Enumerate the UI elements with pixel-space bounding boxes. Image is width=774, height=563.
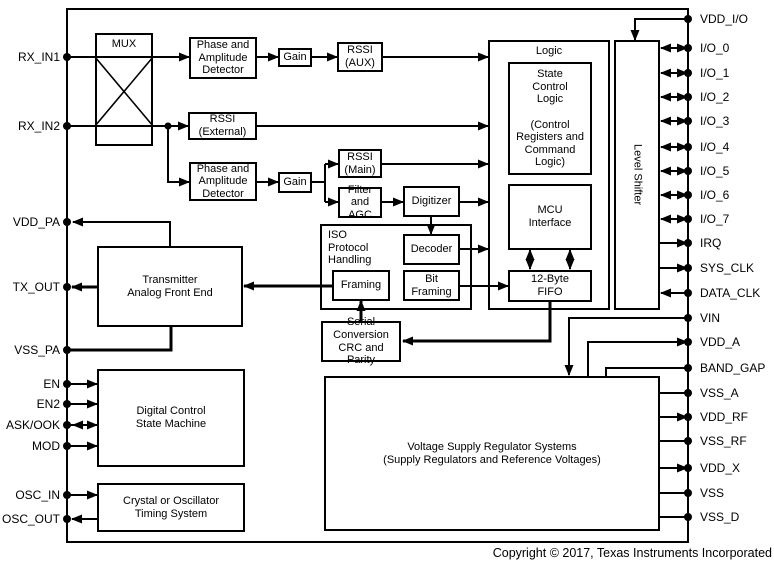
pin-label-osc-in: OSC_IN bbox=[0, 487, 60, 503]
pin-label-band-gap: BAND_GAP bbox=[700, 360, 774, 376]
pin-label-io-5: I/O_5 bbox=[700, 163, 774, 179]
pin-label-vdd-io: VDD_I/O bbox=[700, 11, 774, 27]
mux-cross bbox=[95, 57, 153, 126]
block-diagram: ISO Protocol Handling Logic MUX Phase an… bbox=[0, 0, 774, 563]
pin-label-mod: MOD bbox=[0, 438, 60, 454]
pin-label-io-2: I/O_2 bbox=[700, 89, 774, 105]
pin-label-osc-out: OSC_OUT bbox=[0, 511, 60, 527]
pin-label-io-3: I/O_3 bbox=[700, 113, 774, 129]
pin-label-io-1: I/O_1 bbox=[700, 65, 774, 81]
signal-wires bbox=[67, 19, 688, 519]
pin-label-irq: IRQ bbox=[700, 235, 774, 251]
pin-label-vss-a: VSS_A bbox=[700, 385, 774, 401]
pin-label-rx-in1: RX_IN1 bbox=[0, 49, 60, 65]
pin-label-vdd-a: VDD_A bbox=[700, 334, 774, 350]
wiring-layer bbox=[0, 0, 774, 563]
pin-label-rx-in2: RX_IN2 bbox=[0, 118, 60, 134]
pin-label-tx-out: TX_OUT bbox=[0, 279, 60, 295]
pin-label-vin: VIN bbox=[700, 310, 774, 326]
pin-label-io-7: I/O_7 bbox=[700, 211, 774, 227]
pin-label-vdd-rf: VDD_RF bbox=[700, 409, 774, 425]
pin-label-vss-pa: VSS_PA bbox=[0, 342, 60, 358]
pin-label-vss: VSS bbox=[700, 485, 774, 501]
pin-label-sys-clk: SYS_CLK bbox=[700, 260, 774, 276]
pin-label-en: EN bbox=[0, 376, 60, 392]
copyright-notice: Copyright © 2017, Texas Instruments Inco… bbox=[412, 546, 772, 560]
chip-outline bbox=[67, 9, 688, 542]
pin-label-en2: EN2 bbox=[0, 396, 60, 412]
pin-label-vss-d: VSS_D bbox=[700, 509, 774, 525]
pin-label-vdd-x: VDD_X bbox=[700, 460, 774, 476]
pin-label-io-4: I/O_4 bbox=[700, 139, 774, 155]
pin-label-io-6: I/O_6 bbox=[700, 187, 774, 203]
pin-label-ask-ook: ASK/OOK bbox=[0, 417, 60, 433]
pin-label-vss-rf: VSS_RF bbox=[700, 433, 774, 449]
pin-dots bbox=[63, 15, 692, 523]
pin-label-vdd-pa: VDD_PA bbox=[0, 214, 60, 230]
pin-label-io-0: I/O_0 bbox=[700, 40, 774, 56]
pin-label-data-clk: DATA_CLK bbox=[700, 285, 774, 301]
junction-dot bbox=[165, 123, 172, 130]
